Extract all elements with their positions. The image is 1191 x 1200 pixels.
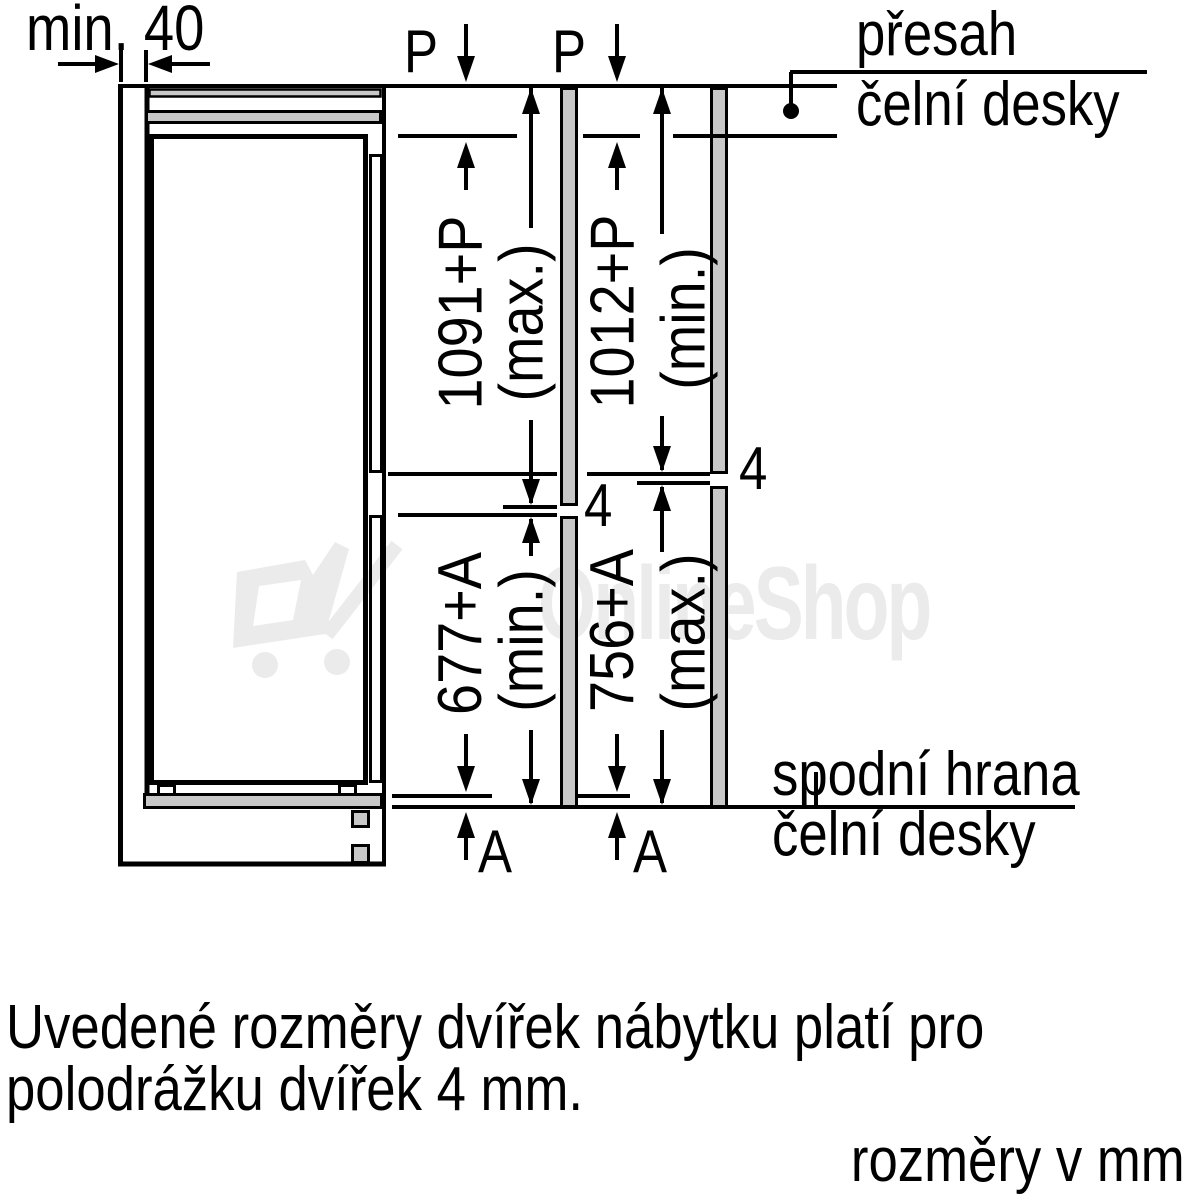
p-label-right: P — [552, 22, 592, 82]
gap-label-right: 4 — [739, 439, 772, 499]
note-line2: polodrážku dvířek 4 mm. — [6, 1059, 583, 1121]
overhang-label-right: A — [633, 822, 673, 882]
bottom-callout-line1: spodní hrana — [772, 744, 1134, 806]
reference-lines — [118, 86, 1075, 807]
overhang-label-left: A — [478, 822, 518, 882]
gap-label-left: 4 — [584, 476, 617, 536]
cabinet-appliance — [118, 86, 386, 866]
furniture-panels — [562, 89, 727, 807]
min-gap-label: min. 40 — [26, 0, 236, 60]
p-label-left: P — [404, 22, 444, 82]
top-callout-line2: čelní desky — [856, 74, 1166, 136]
note-line1: Uvedené rozměry dvířek nábytku platí pro — [6, 997, 984, 1059]
units-label: rozměry v mm — [792, 1130, 1185, 1192]
diagram-stage: OnlineShop — [0, 0, 1191, 1200]
top-callout-line1: přesah — [856, 4, 1046, 66]
note-text: Uvedené rozměry dvířek nábytku platí pro… — [6, 997, 1157, 1121]
bottom-callout-line2: čelní desky — [772, 804, 1082, 866]
callout-leaders — [783, 72, 1147, 807]
